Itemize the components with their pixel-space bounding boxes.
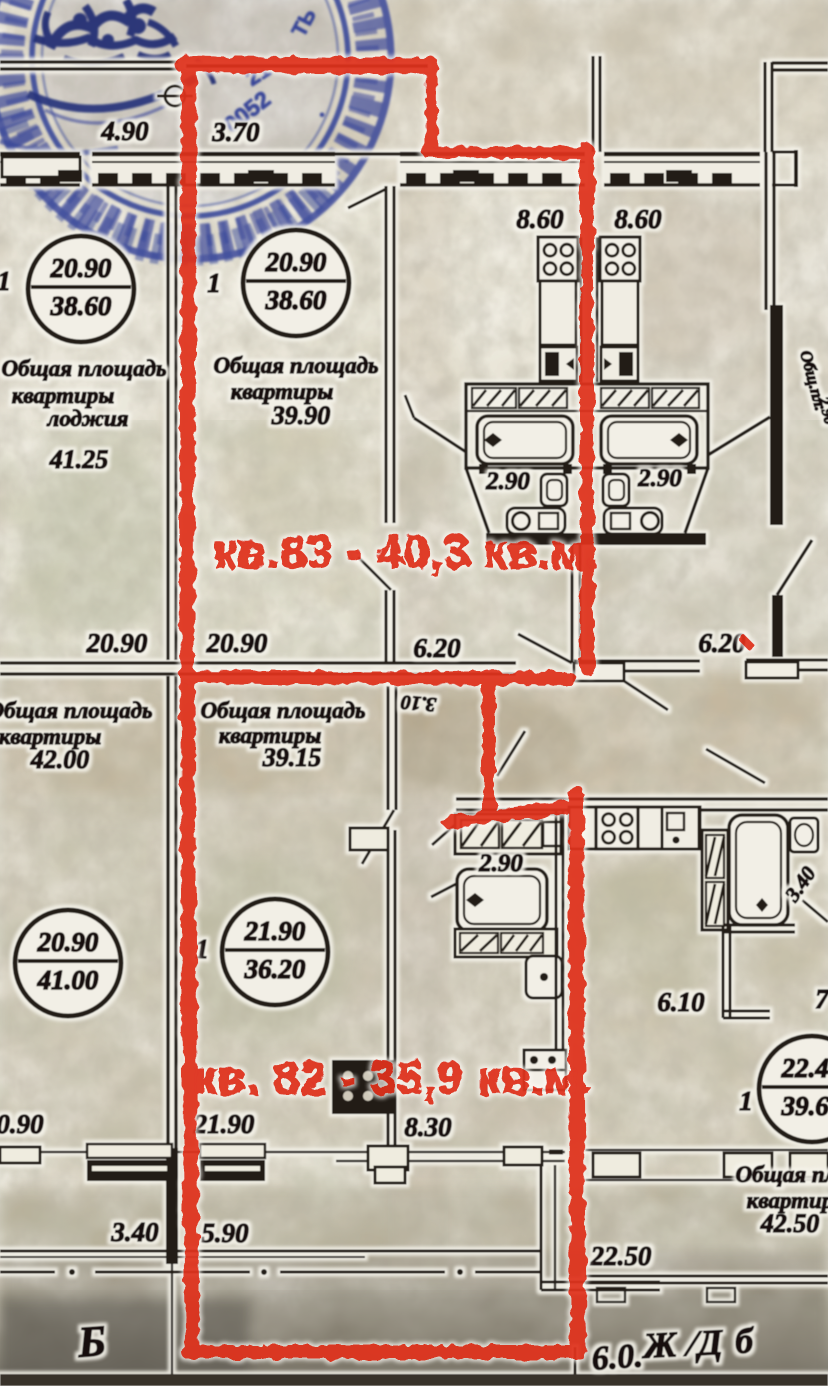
svg-text:Общая площадь: Общая площадь <box>200 698 365 723</box>
svg-text:7: 7 <box>815 984 828 1014</box>
svg-text:8.60: 8.60 <box>516 204 564 234</box>
svg-text:20.90: 20.90 <box>50 253 112 283</box>
svg-text:38.60: 38.60 <box>265 285 327 315</box>
svg-text:21.90: 21.90 <box>193 1109 255 1139</box>
svg-text:20.90: 20.90 <box>265 247 327 277</box>
svg-text:41.25: 41.25 <box>49 445 109 474</box>
svg-text:20.90: 20.90 <box>86 628 148 658</box>
svg-text:Общая площадь: Общая площадь <box>0 698 153 723</box>
svg-text:2.90: 2.90 <box>485 468 530 495</box>
svg-text:41.00: 41.00 <box>37 965 99 995</box>
svg-text:22.50: 22.50 <box>590 1241 652 1271</box>
svg-text:1: 1 <box>195 934 209 964</box>
svg-text:36.20: 36.20 <box>244 954 306 984</box>
svg-text:22.40: 22.40 <box>781 1053 828 1083</box>
svg-text:Общая площадь: Общая площадь <box>1 356 166 381</box>
svg-text:5.90: 5.90 <box>201 1218 249 1248</box>
svg-text:Ж ∕Д б: Ж ∕Д б <box>640 1320 757 1366</box>
svg-text:1: 1 <box>207 268 221 298</box>
svg-text:квартиры: квартиры <box>12 383 115 408</box>
svg-text:Общая площадь: Общая площадь <box>213 353 378 378</box>
svg-text:•: • <box>319 107 325 124</box>
svg-text:6.20: 6.20 <box>413 633 461 663</box>
svg-text:8.60: 8.60 <box>614 204 662 234</box>
svg-text:2.90: 2.90 <box>637 465 682 492</box>
svg-text:Общая пл: Общая пл <box>736 1162 828 1187</box>
svg-text:лоджия: лоджия <box>47 406 129 431</box>
svg-text:кв. 82 - 35,9 кв.м.: кв. 82 - 35,9 кв.м. <box>193 1051 593 1104</box>
svg-text:39.90: 39.90 <box>271 401 331 430</box>
svg-text:38.60: 38.60 <box>50 291 112 321</box>
svg-text:42.00: 42.00 <box>30 745 90 774</box>
svg-text:20.90: 20.90 <box>206 628 268 658</box>
svg-text:0.90: 0.90 <box>0 1109 44 1139</box>
svg-text:42.50: 42.50 <box>760 1209 820 1238</box>
svg-text:6.0.: 6.0. <box>591 1337 644 1377</box>
svg-text:3.10: 3.10 <box>400 690 438 715</box>
svg-text:3.40: 3.40 <box>110 1217 159 1247</box>
svg-text:20.90: 20.90 <box>37 927 99 957</box>
svg-text:1: 1 <box>0 266 11 296</box>
svg-text:39.15: 39.15 <box>262 743 322 772</box>
svg-text:6.10: 6.10 <box>657 987 705 1017</box>
svg-text:6.20: 6.20 <box>698 628 746 658</box>
svg-text:3.70: 3.70 <box>211 117 260 147</box>
svg-text:кв.83 - 40,3 кв.м.: кв.83 - 40,3 кв.м. <box>213 525 599 578</box>
svg-text:4.90: 4.90 <box>100 116 149 146</box>
svg-text:Б: Б <box>75 1316 107 1367</box>
svg-text:39.60: 39.60 <box>781 1091 828 1121</box>
svg-text:8.30: 8.30 <box>404 1112 452 1142</box>
svg-text:21.90: 21.90 <box>244 916 306 946</box>
svg-text:2.90: 2.90 <box>478 850 523 877</box>
svg-text:1: 1 <box>739 1086 753 1116</box>
